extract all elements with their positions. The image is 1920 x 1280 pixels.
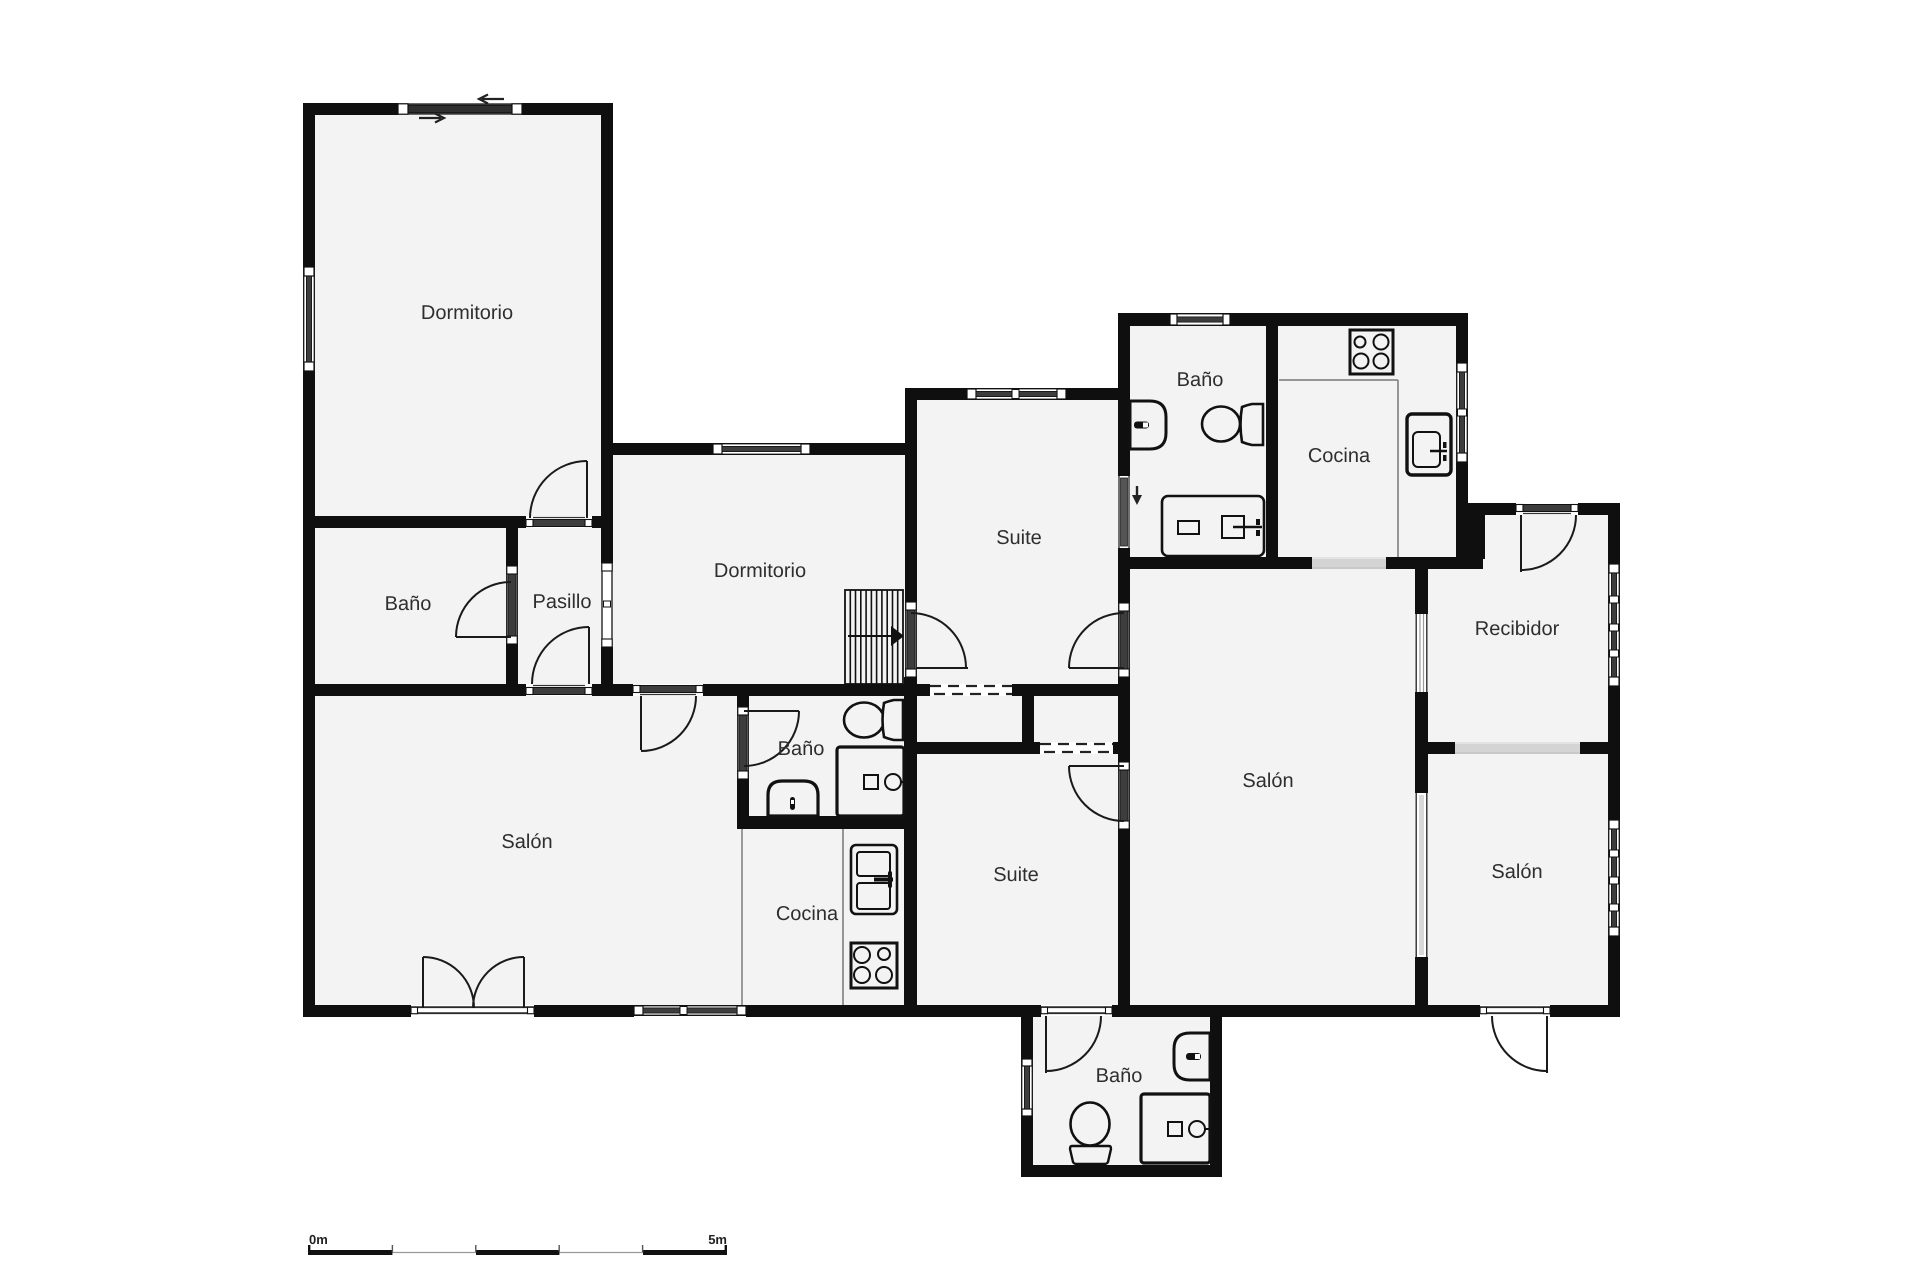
svg-text:Baño: Baño (385, 593, 432, 615)
svg-text:Dormitorio: Dormitorio (421, 302, 513, 324)
svg-text:Salón: Salón (501, 831, 552, 853)
svg-text:Salón: Salón (1242, 770, 1293, 792)
svg-text:Baño: Baño (1096, 1065, 1143, 1087)
svg-text:5m: 5m (708, 1232, 727, 1247)
svg-text:Suite: Suite (996, 527, 1042, 549)
svg-text:Baño: Baño (1177, 369, 1224, 391)
svg-text:0m: 0m (309, 1232, 328, 1247)
svg-text:Cocina: Cocina (1308, 445, 1371, 467)
svg-text:Dormitorio: Dormitorio (714, 560, 806, 582)
svg-text:Salón: Salón (1491, 861, 1542, 883)
svg-text:Cocina: Cocina (776, 903, 839, 925)
svg-text:Baño: Baño (778, 738, 825, 760)
svg-text:Pasillo: Pasillo (533, 591, 592, 613)
svg-text:Recibidor: Recibidor (1475, 618, 1560, 640)
svg-text:Suite: Suite (993, 864, 1039, 886)
